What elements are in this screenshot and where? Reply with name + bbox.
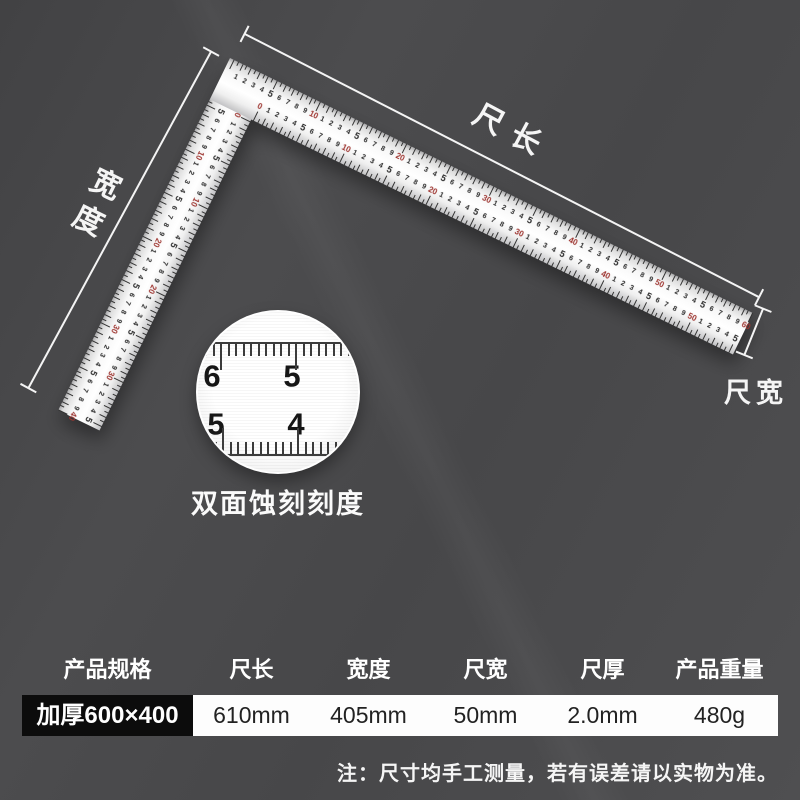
ruler-tick: [111, 301, 115, 304]
ruler-number: 5: [558, 249, 566, 259]
ruler-tick: [136, 335, 145, 340]
ruler-tick: [239, 127, 246, 131]
ruler-tick: [569, 271, 572, 275]
ruler-number: 8: [119, 308, 127, 315]
ruler-number: 8: [379, 145, 386, 153]
ruler-number: 7: [166, 213, 174, 220]
ruler-number: 30: [513, 228, 525, 239]
magnifier-circle: 6 5 5 4: [196, 310, 360, 474]
ruler-tick: [331, 108, 334, 112]
ruler-tick: [469, 218, 474, 227]
ruler-number: 7: [203, 172, 211, 179]
ruler-tick: [297, 428, 299, 454]
ruler-tick: [404, 191, 407, 195]
ruler-tick: [456, 216, 459, 220]
ruler-number: 1: [524, 234, 531, 242]
ruler-tick: [538, 253, 542, 260]
ruler-tick: [521, 201, 524, 205]
ruler-tick: [282, 85, 286, 92]
ruler-tick: [612, 292, 615, 296]
ruler-tick: [409, 146, 412, 150]
ruler-number: 5: [612, 258, 620, 268]
ruler-tick: [668, 273, 671, 277]
ruler-tick: [521, 245, 525, 252]
ruler-tick: [686, 281, 689, 285]
ruler-tick: [715, 296, 719, 303]
ruler-tick: [473, 178, 477, 185]
ruler-tick: [628, 254, 632, 261]
ruler-tick: [288, 344, 290, 356]
ruler-tick: [81, 362, 85, 365]
ruler-tick: [633, 300, 637, 307]
ruler-number: 1: [191, 161, 199, 168]
ruler-tick: [137, 249, 141, 252]
ruler-number: 7: [403, 175, 410, 183]
ruler-tick: [235, 344, 237, 356]
ruler-tick: [634, 256, 637, 260]
ruler-number: 4: [604, 255, 611, 263]
ruler-number: 4: [345, 128, 352, 136]
ruler-tick: [90, 344, 94, 347]
ruler-tick: [659, 312, 663, 319]
ruler-tick: [108, 397, 115, 401]
ruler-number: 8: [671, 305, 678, 313]
ruler-tick: [58, 410, 67, 415]
ruler-tick: [162, 196, 166, 199]
ruler-tick: [120, 283, 124, 286]
ruler-number: 6: [122, 338, 130, 345]
ruler-tick: [230, 442, 232, 454]
ruler-tick: [184, 240, 191, 244]
ruler-tick: [295, 344, 297, 370]
ruler-tick: [167, 275, 174, 279]
spec-table-row: 加厚600×400 610mm 405mm 50mm 2.0mm 480g: [22, 695, 778, 736]
ruler-tick: [412, 148, 416, 155]
spec-value-cell: 50mm: [427, 695, 544, 736]
ruler-number: 6: [708, 305, 715, 313]
ruler-tick: [387, 182, 390, 186]
ruler-number: 7: [371, 141, 378, 149]
ruler-tick: [422, 199, 425, 203]
ruler-number: 6: [276, 95, 283, 103]
ruler-tick: [532, 207, 537, 216]
ruler-tick: [340, 112, 343, 116]
ruler-tick: [582, 231, 585, 235]
ruler-tick: [660, 269, 663, 273]
ruler-tick: [689, 283, 693, 290]
ruler-tick: [452, 211, 456, 218]
ruler-tick: [320, 442, 322, 454]
ruler-tick: [222, 428, 224, 454]
ruler-tick: [105, 314, 112, 318]
ruler-number: 20: [394, 152, 406, 163]
ruler-tick: [334, 110, 338, 117]
spec-value-cell: 480g: [661, 695, 778, 736]
ruler-tick: [482, 229, 485, 233]
header-cell: 宽度: [310, 648, 427, 692]
ruler-tick: [266, 123, 269, 127]
ruler-tick: [193, 223, 200, 227]
ruler-number: 9: [200, 143, 208, 150]
ruler-tick: [729, 344, 734, 353]
ruler-tick: [175, 170, 179, 173]
ruler-number: 4: [291, 120, 298, 128]
ruler-number: 9: [421, 183, 428, 191]
ruler-tick: [223, 167, 227, 170]
ruler-tick: [642, 302, 647, 311]
ruler-number: 9: [157, 230, 165, 237]
ruler-tick: [746, 311, 749, 315]
header-cell: 尺宽: [427, 648, 544, 692]
ruler-number: 1: [319, 116, 326, 124]
ruler-number: 30: [104, 370, 115, 382]
ruler-number: 4: [377, 162, 384, 170]
ruler-number: 6: [207, 164, 215, 171]
ruler-tick: [461, 172, 464, 176]
ruler-tick: [516, 199, 520, 206]
ruler-tick: [489, 186, 494, 195]
ruler-tick: [189, 237, 193, 240]
ruler-number: 5: [731, 334, 739, 344]
magnifier-top-edge: [198, 342, 360, 344]
ruler-number: 1: [351, 149, 358, 157]
ruler-tick: [221, 161, 230, 166]
ruler-tick: [577, 275, 580, 279]
ruler-tick: [525, 203, 529, 210]
ruler-tick: [183, 153, 187, 156]
ruler-tick: [421, 153, 425, 160]
magnifier-number: 6: [203, 361, 220, 392]
ruler-number: 6: [481, 213, 488, 221]
ruler-number: 8: [325, 137, 332, 145]
ruler-tick: [132, 257, 136, 260]
ruler-number: 4: [637, 288, 644, 296]
ruler-tick: [300, 93, 304, 100]
ruler-tick: [147, 324, 151, 327]
ruler-number: 5: [83, 415, 93, 423]
ruler-tick: [139, 244, 146, 248]
ruler-tick: [262, 118, 266, 125]
ruler-tick: [104, 411, 108, 414]
ruler-number: 5: [644, 292, 652, 302]
ruler-tick: [556, 260, 561, 269]
ruler-tick: [378, 131, 382, 138]
ruler-number: 3: [423, 166, 430, 174]
ruler-tick: [69, 388, 73, 391]
ruler-number: 3: [98, 352, 106, 359]
ruler-tick: [651, 308, 655, 315]
ruler-number: 6: [654, 297, 661, 305]
ruler-tick: [192, 136, 196, 139]
ruler-tick: [229, 60, 234, 69]
ruler-number: 1: [578, 242, 585, 250]
ruler-tick: [257, 119, 260, 123]
ruler-tick: [308, 98, 312, 105]
ruler-tick: [694, 285, 697, 289]
ruler-tick: [107, 310, 111, 313]
ruler-tick: [349, 117, 352, 121]
ruler-tick: [720, 298, 723, 302]
ruler-tick: [198, 122, 205, 126]
ruler-tick: [206, 202, 210, 205]
ruler-tick: [260, 442, 262, 454]
ruler-tick: [280, 344, 282, 356]
ruler-tick: [325, 344, 327, 356]
ruler-number: 4: [464, 204, 471, 212]
ruler-tick: [499, 237, 502, 241]
ruler-number: 1: [229, 120, 237, 127]
ruler-tick: [550, 216, 554, 223]
ruler-tick: [275, 127, 278, 131]
ruler-tick: [134, 350, 138, 353]
ruler-tick: [504, 193, 507, 197]
ruler-number: 3: [282, 116, 289, 124]
ruler-tick: [113, 297, 120, 301]
ruler-tick: [333, 344, 335, 356]
ruler-tick: [122, 279, 131, 284]
ruler-tick: [435, 203, 439, 210]
ruler-tick: [181, 157, 188, 161]
ruler-tick: [218, 170, 225, 174]
ruler-number: 1: [405, 158, 412, 166]
ruler-tick: [156, 209, 163, 213]
ruler-number: 20: [151, 236, 162, 248]
ruler-tick: [283, 132, 286, 136]
ruler-tick: [271, 79, 274, 83]
ruler-number: 5: [88, 368, 98, 376]
ruler-tick: [464, 174, 468, 181]
ruler-number: 4: [550, 246, 557, 254]
ruler-tick: [75, 375, 82, 379]
ruler-tick: [654, 266, 658, 273]
ruler-number: 9: [561, 234, 568, 242]
ruler-tick: [698, 334, 701, 338]
ruler-tick: [318, 148, 321, 152]
ruler-tick: [326, 153, 329, 157]
ruler-tick: [190, 140, 197, 144]
ruler-number: 7: [284, 99, 291, 107]
ruler-tick: [117, 288, 124, 292]
ruler-number: 7: [161, 259, 169, 266]
ruler-tick: [568, 224, 572, 231]
ruler-tick: [130, 262, 137, 266]
ruler-number: 8: [161, 221, 169, 228]
ruler-number: 5: [173, 194, 183, 202]
ruler-tick: [348, 344, 350, 356]
ruler-tick: [374, 173, 378, 180]
header-cell: 尺长: [193, 648, 310, 692]
ruler-tick: [352, 119, 356, 126]
length-label: 尺长: [451, 89, 574, 177]
ruler-number: 6: [212, 117, 220, 124]
ruler-tick: [438, 161, 442, 168]
ruler-number: 4: [431, 170, 438, 178]
ruler-number: 10: [340, 144, 352, 155]
ruler-tick: [176, 257, 183, 261]
ruler-tick: [729, 302, 732, 306]
ruler-number: 2: [446, 196, 453, 204]
ruler-tick: [112, 388, 119, 392]
ruler-tick: [270, 123, 274, 130]
ruler-tick: [273, 344, 275, 356]
ruler-tick: [409, 190, 413, 197]
ruler-tick: [429, 157, 433, 164]
ruler-tick: [235, 136, 242, 140]
ruler-tick: [88, 349, 95, 353]
ruler-tick: [109, 305, 116, 309]
ruler-number: 8: [156, 268, 164, 275]
ruler-tick: [357, 121, 360, 125]
ruler-tick: [197, 214, 204, 218]
ruler-tick: [705, 292, 710, 301]
ruler-tick: [560, 266, 563, 270]
ruler-tick: [465, 220, 468, 224]
ruler-number: 6: [85, 378, 93, 385]
ruler-tick: [350, 442, 352, 454]
ruler-tick: [124, 275, 128, 278]
ruler-tick: [323, 104, 326, 108]
ruler-tick: [594, 237, 598, 244]
spec-value-cell: 405mm: [310, 695, 427, 736]
ruler-tick: [470, 176, 473, 180]
ruler-number: 1: [265, 107, 272, 115]
ruler-tick: [530, 249, 534, 256]
ruler-tick: [64, 397, 68, 400]
ruler-tick: [176, 263, 180, 266]
ruler-tick: [507, 195, 511, 202]
ruler-number: 6: [535, 221, 542, 229]
ruler-number: 6: [127, 291, 135, 298]
ruler-tick: [275, 442, 277, 454]
ruler-number: 6: [170, 204, 178, 211]
ruler-tick: [343, 115, 347, 122]
ruler-tick: [172, 272, 176, 275]
ruler-number: 2: [619, 280, 626, 288]
ruler-tick: [166, 188, 170, 191]
length-dimension-line: [244, 33, 759, 298]
ruler-number: 4: [89, 407, 97, 414]
ruler-tick: [478, 224, 482, 231]
ruler-number: 8: [585, 263, 592, 271]
ruler-tick: [117, 385, 121, 388]
ruler-tick: [559, 220, 563, 227]
ruler-number: 8: [552, 229, 559, 237]
ruler-tick: [443, 207, 447, 214]
ruler-number: 7: [118, 346, 126, 353]
ruler-tick: [207, 442, 209, 454]
ruler-tick: [517, 245, 520, 249]
ruler-number: 8: [204, 134, 212, 141]
ruler-tick: [194, 131, 201, 135]
ruler-tick: [400, 142, 403, 146]
ruler-tick: [748, 313, 753, 322]
ruler-tick: [207, 105, 216, 110]
ruler-tick: [680, 279, 684, 286]
ruler-tick: [357, 165, 361, 172]
ruler-number: 9: [593, 267, 600, 275]
ruler-number: 9: [110, 364, 118, 371]
ruler-number: 1: [101, 381, 109, 388]
ruler-tick: [313, 144, 317, 151]
ruler-tick: [202, 211, 206, 214]
ruler-tick: [168, 281, 172, 284]
ruler-tick: [129, 353, 136, 357]
ruler-tick: [448, 212, 451, 216]
ruler-tick: [366, 125, 369, 129]
ruler-tick: [154, 301, 161, 305]
ruler-tick: [253, 70, 256, 74]
ruler-number: 7: [630, 267, 637, 275]
ruler-tick: [243, 344, 245, 356]
ruler-tick: [378, 178, 381, 182]
ruler-number: 4: [723, 331, 730, 339]
ruler-number: 2: [706, 322, 713, 330]
ruler-tick: [707, 338, 710, 342]
ruler-tick: [187, 144, 191, 147]
ruler-tick: [163, 284, 170, 288]
ruler-tick: [662, 271, 667, 280]
ruler-number: 5: [126, 328, 136, 336]
ruler-number: 4: [136, 274, 144, 281]
ruler-number: 3: [336, 124, 343, 132]
ruler-number: 5: [698, 300, 706, 310]
ruler-number: 2: [673, 289, 680, 297]
ruler-number: 3: [682, 293, 689, 301]
ruler-tick: [164, 192, 173, 197]
ruler-tick: [265, 344, 267, 356]
ruler-number: 7: [208, 126, 216, 133]
ruler-tick: [142, 333, 146, 336]
ruler-number: 1: [232, 73, 239, 81]
ruler-tick: [193, 228, 197, 231]
ruler-tick: [625, 252, 628, 256]
ruler-tick: [395, 140, 399, 147]
ruler-number: 8: [725, 314, 732, 322]
ruler-tick: [100, 420, 104, 423]
ruler-tick: [279, 127, 283, 134]
ruler-tick: [288, 87, 291, 91]
ruler-tick: [156, 291, 165, 296]
ruler-tick: [444, 163, 447, 167]
ruler-number: 2: [414, 162, 421, 170]
ruler-tick: [646, 262, 650, 269]
ruler-tick: [297, 91, 300, 95]
ruler-number: 9: [152, 277, 160, 284]
ruler-number: 40: [66, 410, 77, 422]
ruler-tick: [309, 144, 312, 148]
ruler-tick: [335, 442, 337, 454]
header-cell: 产品规格: [22, 648, 193, 692]
ruler-tick: [413, 195, 416, 199]
magnifier-bottom-edge: [198, 454, 360, 456]
ruler-tick: [147, 227, 154, 231]
ruler-number: 7: [544, 225, 551, 233]
ruler-tick: [602, 241, 606, 248]
ruler-tick: [146, 318, 153, 322]
ruler-number: 7: [663, 301, 670, 309]
ruler-number: 5: [385, 165, 393, 175]
ruler-tick: [164, 289, 168, 292]
ruler-tick: [322, 148, 326, 155]
ruler-tick: [616, 291, 620, 298]
ruler-tick: [138, 341, 142, 344]
ruler-number: 5: [352, 131, 360, 141]
ruler-tick: [84, 357, 91, 361]
ruler-tick: [599, 239, 602, 243]
ruler-number: 1: [492, 200, 499, 208]
ruler-number: 40: [600, 270, 612, 281]
ruler-number: 7: [457, 183, 464, 191]
